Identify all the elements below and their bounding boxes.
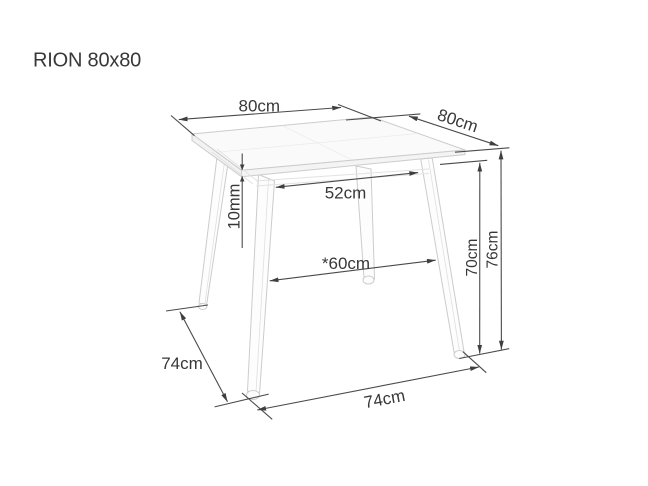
- svg-text:70cm: 70cm: [464, 239, 481, 277]
- svg-text:*60cm: *60cm: [322, 254, 370, 273]
- svg-text:10mm: 10mm: [226, 184, 244, 230]
- svg-text:74cm: 74cm: [362, 386, 406, 412]
- svg-text:RION 80x80: RION 80x80: [33, 50, 141, 72]
- svg-text:74cm: 74cm: [161, 354, 203, 373]
- svg-text:76cm: 76cm: [485, 231, 502, 269]
- svg-text:52cm: 52cm: [325, 184, 367, 203]
- svg-text:80cm: 80cm: [239, 97, 281, 116]
- svg-text:80cm: 80cm: [435, 105, 480, 136]
